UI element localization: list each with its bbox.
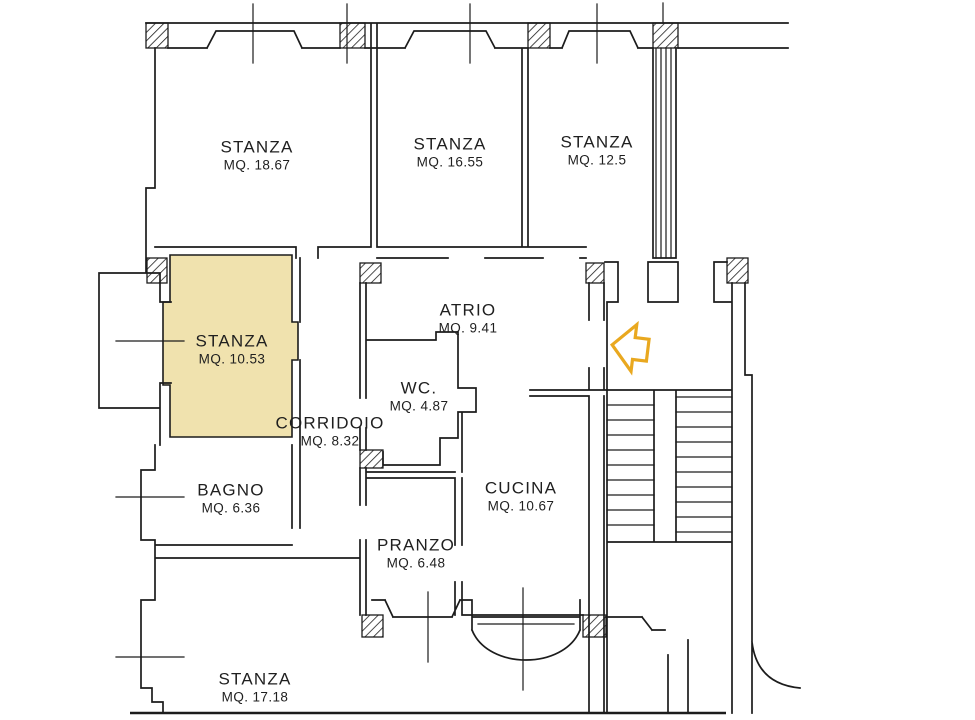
floor-plan-drawing bbox=[0, 0, 975, 720]
stair-treads bbox=[607, 397, 732, 532]
floor-plan-page: STANZA MQ. 18.67 STANZA MQ. 16.55 STANZA… bbox=[0, 0, 975, 720]
entrance-arrow-icon bbox=[609, 322, 650, 373]
highlighted-room-fill bbox=[163, 255, 298, 437]
